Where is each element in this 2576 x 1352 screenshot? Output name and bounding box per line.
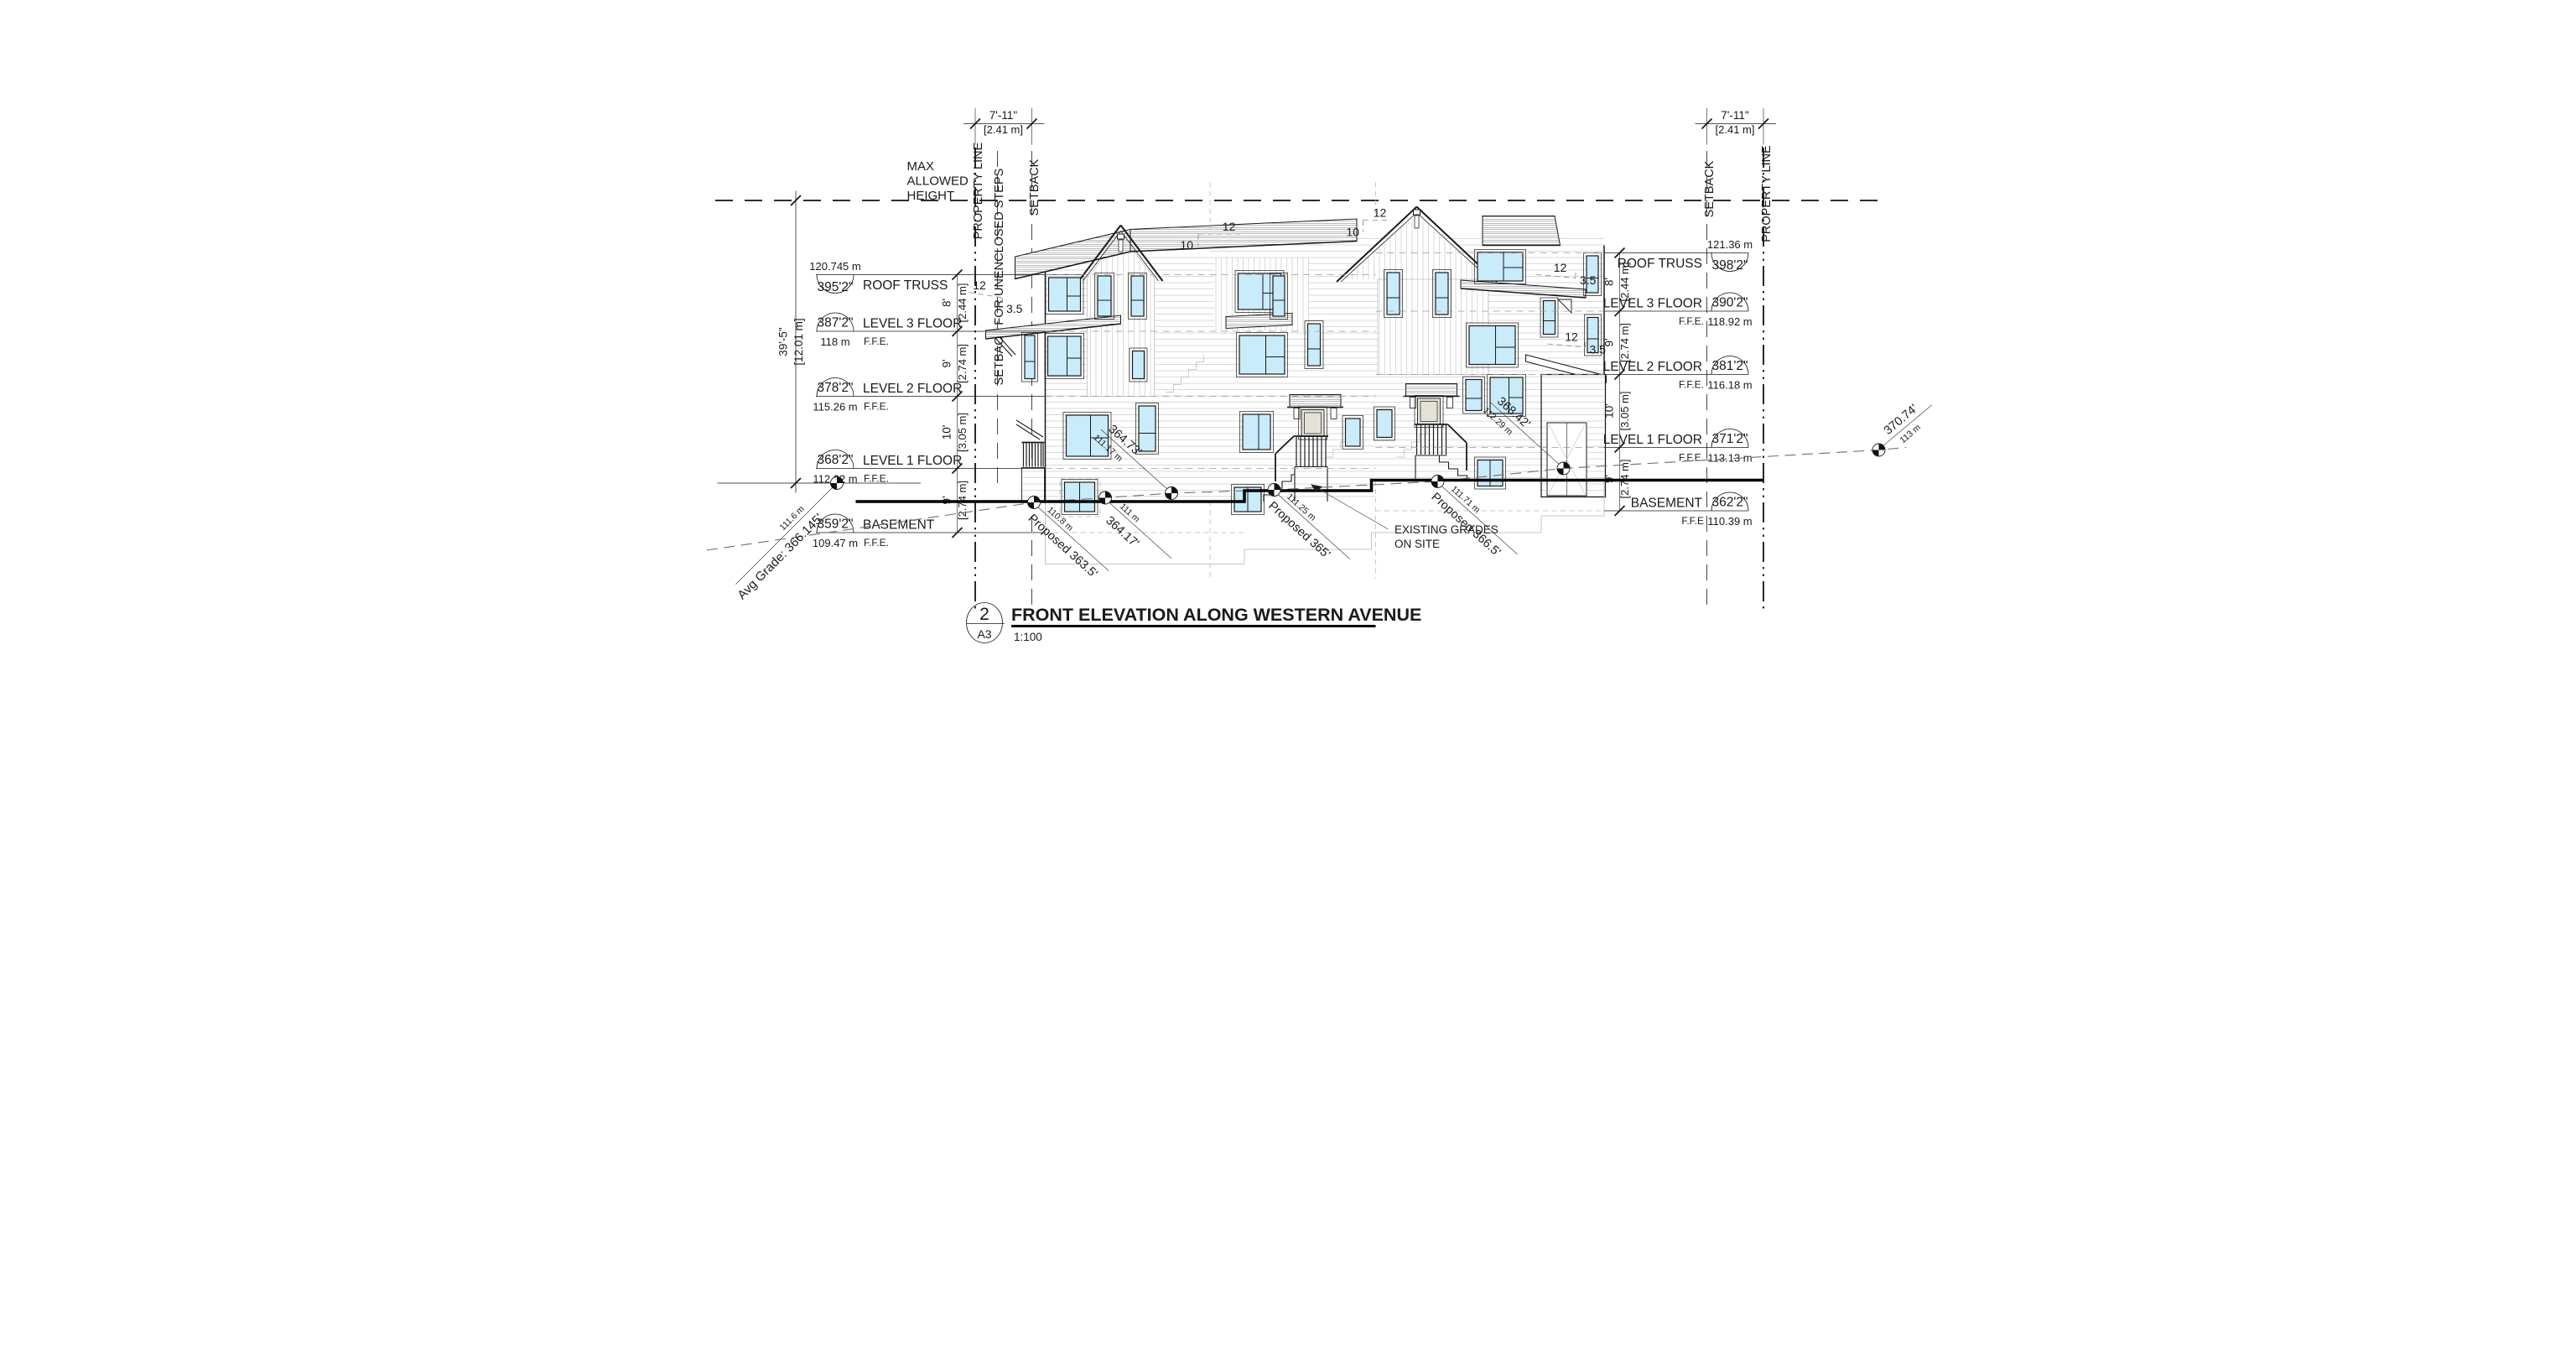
- level-metric: 115.26 m: [813, 401, 857, 413]
- window: [1062, 480, 1098, 515]
- level-elevation: 387'2": [818, 316, 854, 330]
- level-name: LEVEL 3 FLOOR: [863, 317, 962, 331]
- level-ffe: F.F.E.: [864, 537, 889, 549]
- window: [1240, 412, 1274, 453]
- level-elevation: 371'2": [1712, 432, 1748, 446]
- overall-height-ft: 39'-5": [777, 327, 790, 356]
- garage: [1541, 375, 1606, 497]
- level-metric: 113.13 m: [1707, 452, 1752, 465]
- window: [1343, 416, 1363, 450]
- level-metric: 109.47 m: [813, 537, 858, 549]
- window: [1063, 413, 1111, 460]
- floor-dim-m: [2.44 m]: [1618, 263, 1631, 302]
- level-elevation: 390'2": [1712, 296, 1748, 310]
- setback-dim-ft: 7'-11": [989, 109, 1018, 122]
- level-name: ROOF TRUSS: [863, 278, 948, 293]
- setback-dim-m: [2.41 m]: [1716, 123, 1755, 136]
- window: [1475, 250, 1526, 284]
- slope-rise: 12: [1554, 261, 1567, 274]
- property-line-label-right: PROPERTY LINE: [1760, 145, 1774, 242]
- slope-run: 10: [1180, 238, 1193, 252]
- window: [1305, 321, 1323, 369]
- floor-dim-m: [3.05 m]: [1618, 392, 1631, 431]
- max-height-label-1: MAX: [907, 159, 935, 174]
- slope-rise: 12: [973, 278, 986, 292]
- setback-label-right: SETBACK: [1703, 160, 1716, 217]
- slope-run: 3.5: [1006, 302, 1023, 315]
- level-metric: 110.39 m: [1707, 515, 1752, 528]
- window: [1046, 275, 1083, 315]
- level-ffe: F.F.E.: [864, 335, 889, 347]
- property-line-label-left: PROPERTY LINE: [972, 142, 985, 239]
- level-elevation: 381'2": [1712, 359, 1748, 373]
- drawing-title: FRONT ELEVATION ALONG WESTERN AVENUE: [1011, 605, 1421, 625]
- level-elevation: 378'2": [818, 381, 854, 395]
- max-height-label-2: ALLOWED: [907, 174, 969, 189]
- level-metric: 121.36 m: [1707, 238, 1753, 251]
- level-elevation: 395'2": [818, 280, 854, 294]
- front-elevation-drawing: MAX ALLOWED HEIGHT 39'-5" [12.01 m] PROP…: [644, 0, 1932, 676]
- steps-setback-label: SETBACK FOR UNENCLOSED STEPS: [993, 169, 1006, 386]
- level-ffe: F.F.E.: [864, 473, 889, 485]
- floor-dim-ft: 10': [941, 425, 953, 440]
- window: [1475, 457, 1506, 489]
- existing-grades-line2: ON SITE: [1394, 538, 1440, 550]
- level-ffe: F.F.E.: [864, 401, 889, 413]
- window: [1463, 377, 1485, 413]
- window: [1237, 333, 1288, 377]
- floor-dim-ft: 9': [941, 359, 953, 367]
- level-elevation: 398'2": [1712, 258, 1748, 273]
- floor-dim-ft: 8': [941, 299, 953, 307]
- level-name: BASEMENT: [1631, 497, 1703, 511]
- level-ffe: F.F.E.: [1679, 379, 1704, 391]
- overall-height-m: [12.01 m]: [792, 318, 805, 365]
- floor-dim-ft: 9': [1603, 338, 1616, 346]
- drawing-sheet: MAX ALLOWED HEIGHT 39'-5" [12.01 m] PROP…: [644, 0, 1932, 676]
- level-metric: 120.745 m: [809, 260, 860, 273]
- level-name: LEVEL 2 FLOOR: [863, 382, 962, 396]
- window: [1232, 485, 1265, 515]
- floor-dim-ft: 8': [1603, 278, 1616, 286]
- window: [1129, 273, 1147, 320]
- setback-dim-ft: 7'-11": [1721, 109, 1749, 122]
- drawing-scale: 1:100: [1014, 631, 1042, 643]
- max-height-label-3: HEIGHT: [907, 189, 955, 203]
- slope-rise: 12: [1374, 206, 1387, 220]
- window: [1374, 407, 1395, 440]
- level-elevation: 362'2": [1712, 496, 1748, 510]
- door: [1418, 398, 1441, 424]
- window: [1270, 273, 1288, 320]
- window: [1433, 270, 1452, 318]
- sheet-number: A3: [977, 627, 991, 641]
- window: [1130, 348, 1147, 382]
- level-elevation: 368'2": [818, 453, 854, 467]
- level-name: LEVEL 1 FLOOR: [863, 454, 962, 468]
- window: [1467, 323, 1519, 367]
- setback-label-left: SETBACK: [1028, 159, 1041, 216]
- slope-run: 3.5: [1580, 273, 1597, 287]
- detail-number: 2: [979, 605, 989, 624]
- existing-grades-line1: EXISTING GRADES: [1394, 523, 1498, 536]
- window: [1045, 334, 1084, 379]
- floor-dim-m: [2.74 m]: [956, 344, 969, 383]
- level-name: LEVEL 3 FLOOR: [1603, 297, 1702, 311]
- level-name: LEVEL 2 FLOOR: [1603, 360, 1702, 374]
- level-ffe: F.F.E.: [1679, 315, 1704, 327]
- level-name: BASEMENT: [863, 518, 935, 533]
- window: [1384, 270, 1403, 318]
- window: [1540, 298, 1558, 337]
- level-metric: 116.18 m: [1707, 379, 1752, 392]
- window: [1095, 273, 1114, 320]
- roof-vent: [1118, 234, 1124, 239]
- slope-run: 10: [1346, 226, 1359, 239]
- slope-rise: 12: [1223, 220, 1236, 233]
- floor-dim-m: [2.74 m]: [1618, 323, 1631, 362]
- level-metric: 118.92 m: [1707, 315, 1752, 328]
- level-name: LEVEL 1 FLOOR: [1603, 433, 1702, 447]
- floor-dim-m: [3.05 m]: [956, 413, 969, 452]
- door: [1301, 410, 1324, 437]
- level-metric: 118 m: [820, 335, 849, 348]
- slope-rise: 12: [1565, 330, 1578, 344]
- setback-dim-m: [2.41 m]: [984, 123, 1023, 136]
- floor-dim-m: [2.44 m]: [956, 283, 969, 323]
- level-ffe: F.F.E: [1681, 515, 1704, 527]
- roof-vent: [1414, 210, 1420, 215]
- floor-dim-ft: 10': [1603, 403, 1616, 419]
